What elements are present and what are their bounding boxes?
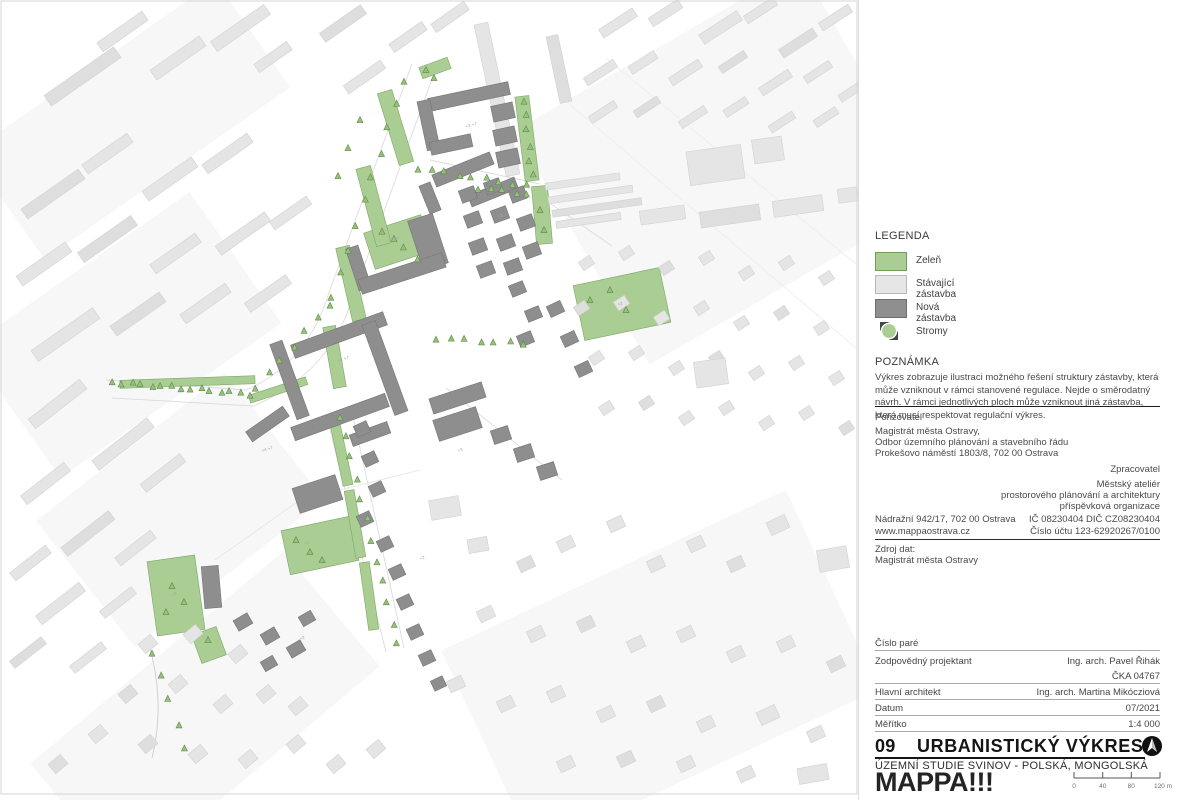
table-line [875, 650, 1160, 651]
table-row-value2: ČKA 04767 [1112, 671, 1160, 682]
processor-label: Zpracovatel [1110, 464, 1160, 475]
table-row-value: Ing. arch. Martina Mikócziová [1036, 687, 1160, 698]
drawing-number: 09 [875, 736, 896, 757]
processor-address: Nádražní 942/17, 702 00 Ostrava [875, 514, 1015, 525]
processor-website: www.mappaostrava.cz [875, 526, 970, 537]
drawing-title: URBANISTICKÝ VÝKRES [917, 736, 1143, 757]
svg-text:+3: +3 [457, 447, 464, 453]
processor-account: Číslo účtu 123-62920267/0100 [1030, 526, 1160, 537]
table-line [875, 731, 1160, 732]
processor-org: Městský ateliér [1097, 479, 1160, 490]
svg-text:+2: +2 [419, 555, 426, 561]
scale-label: 80 [1128, 783, 1136, 790]
processor-org: prostorového plánování a architektury [1001, 490, 1160, 501]
table-line [875, 715, 1160, 716]
data-source-value: Magistrát města Ostravy [875, 555, 978, 566]
table-row-label: Hlavní architekt [875, 687, 940, 698]
north-arrow-icon [1141, 735, 1163, 757]
legend-item-label: Stávající zástavba [916, 278, 956, 300]
title-block-panel: LEGENDA Zeleň Stávající zástavba Nová zá… [875, 0, 1160, 800]
table-line [875, 683, 1160, 684]
svg-text:+3 +7: +3 +7 [465, 121, 478, 129]
originator-line: Prokešovo náměstí 1803/8, 702 00 Ostrava [875, 448, 1058, 459]
table-row-label: Měřítko [875, 719, 907, 730]
table-row-value: 07/2021 [1126, 703, 1160, 714]
title-underline [875, 757, 1145, 759]
scale-label: 0 [1072, 783, 1076, 790]
legend-item-label: Zeleň [916, 255, 941, 266]
data-source-label: Zdroj dat: [875, 544, 915, 555]
new-swatch [875, 299, 907, 318]
processor-org: příspěvková organizace [1060, 501, 1160, 512]
scale-bar: 0 40 80 120 m [1064, 768, 1180, 794]
green-swatch [875, 252, 907, 271]
scale-label: 120 m [1154, 783, 1172, 790]
originator-label: Pořizovatel [875, 412, 922, 423]
urban-plan-map: +3 +7+2 +4+4 +7+4 +7+2+3+3+2+2+2+2 [0, 0, 858, 800]
table-row-value: 1:4 000 [1128, 719, 1160, 730]
sheet-divider [858, 0, 859, 800]
mappa-logo: MAPPA!!! [875, 767, 993, 798]
divider-line [875, 539, 1160, 540]
legend-title: LEGENDA [875, 230, 930, 242]
table-line [875, 699, 1160, 700]
tree-icon [879, 321, 899, 341]
note-title: POZNÁMKA [875, 356, 939, 368]
originator-line: Odbor územního plánování a stavebního řá… [875, 437, 1068, 448]
originator-line: Magistrát města Ostravy, [875, 426, 980, 437]
divider-line [875, 406, 1160, 407]
table-row-label: Číslo paré [875, 638, 918, 649]
table-row-label: Datum [875, 703, 903, 714]
processor-ids: IČ 08230404 DIČ CZ08230404 [1029, 514, 1160, 525]
table-row-value: Ing. arch. Pavel Řihák [1067, 656, 1160, 667]
urban-plan-drawing: +3 +7+2 +4+4 +7+4 +7+2+3+3+2+2+2+2 [0, 0, 858, 800]
legend-item-label: Stromy [916, 326, 948, 337]
existing-swatch [875, 275, 907, 294]
table-row-label: Zodpovědný projektant [875, 656, 972, 667]
scale-label: 40 [1099, 783, 1107, 790]
legend-item-label: Nová zástavba [916, 302, 956, 324]
